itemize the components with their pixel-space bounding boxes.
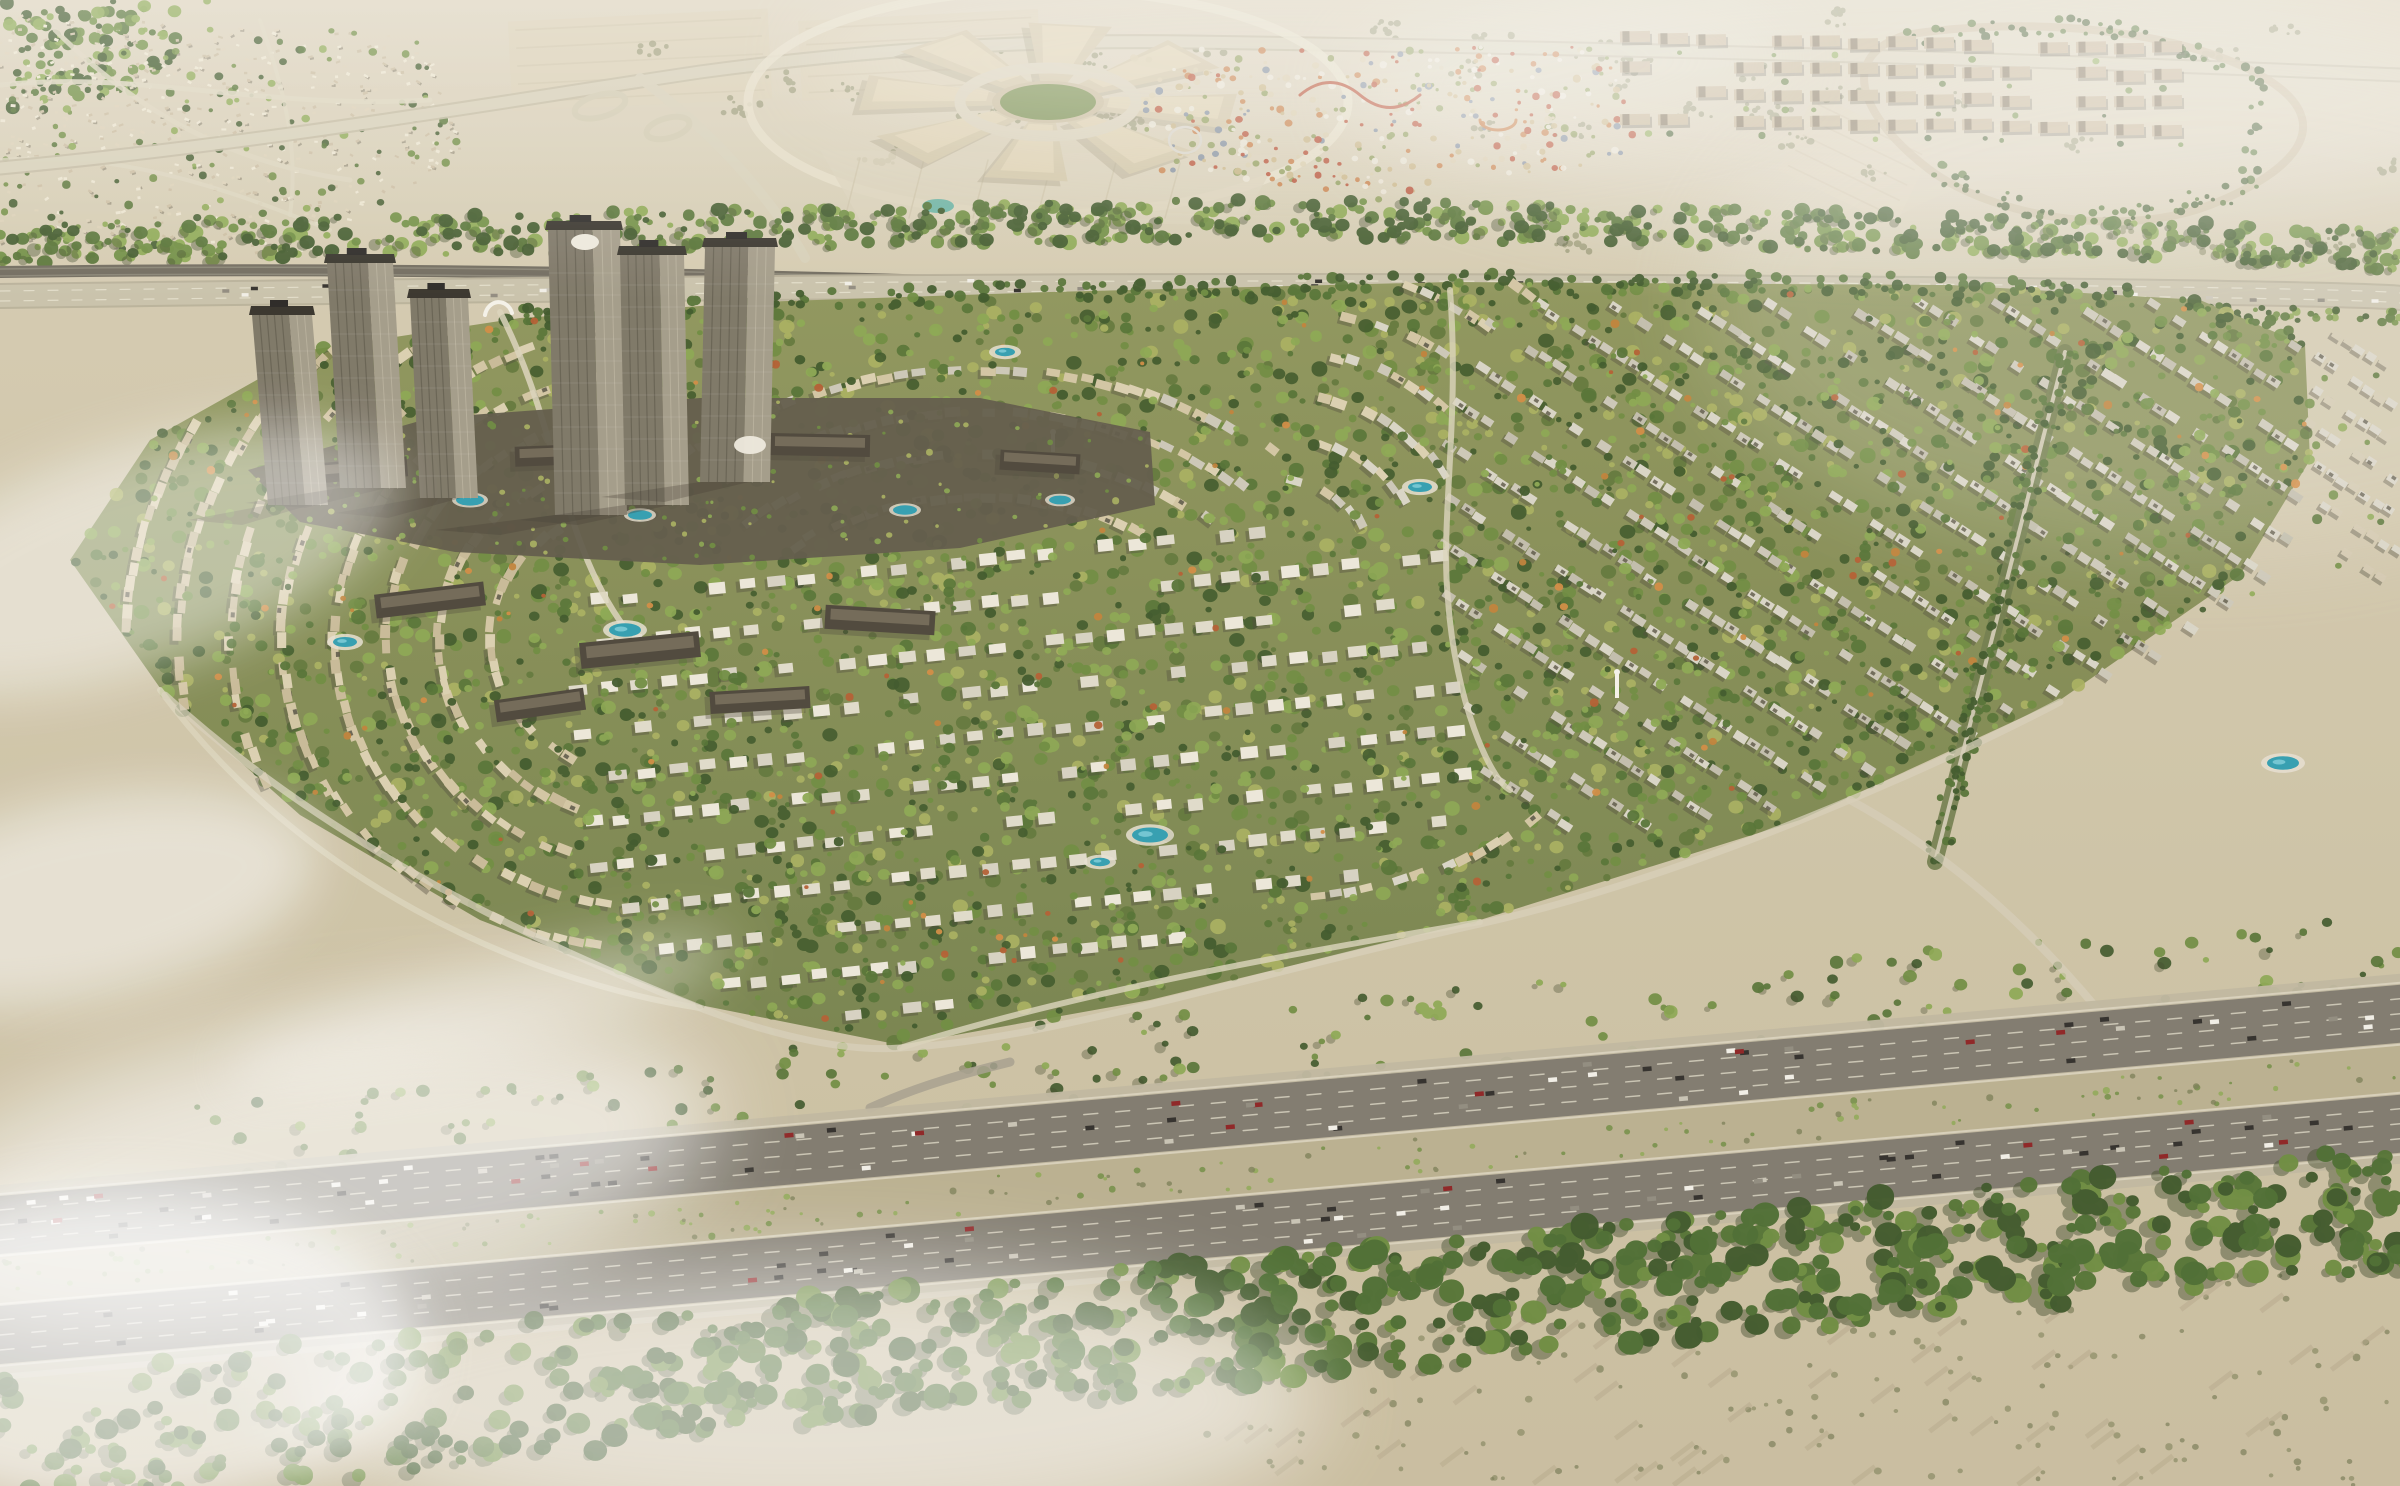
warm-tone-overlay [0,0,2400,1486]
aerial-render [0,0,2400,1486]
aerial-render-stage [0,0,2400,1486]
